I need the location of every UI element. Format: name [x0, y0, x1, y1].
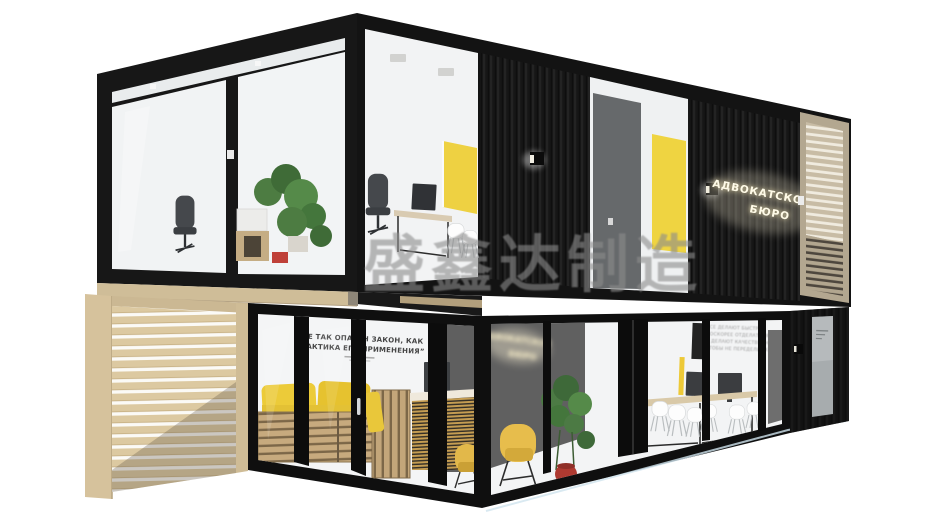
wall-lamp — [523, 151, 545, 169]
cabinet-shelf — [244, 236, 261, 257]
window-clip — [150, 84, 156, 89]
door-handle — [608, 218, 613, 225]
lower-floor: “НЕ ТАК ОПАСЕН ЗАКОН, КАК ПРАКТИКА ЕГО П… — [85, 294, 849, 511]
mullion — [702, 319, 710, 441]
window-clip — [255, 61, 261, 66]
mullion — [543, 321, 551, 474]
sliding-door-frame — [618, 319, 648, 457]
upper-left-facade — [97, 13, 357, 292]
window-handle — [227, 150, 234, 159]
watermark-text: 盛鑫达制造 — [363, 228, 703, 301]
sliding-door-stile — [351, 319, 366, 476]
screen-post-right — [236, 303, 248, 473]
ceiling-light — [438, 68, 454, 76]
wood-slat-screen — [85, 294, 248, 499]
render-scene: АДВОКАТСКОЕ БЮРО АДВОКАТСКОЕ БЮРО — [0, 0, 930, 523]
yellow-door — [443, 141, 477, 214]
wall-board — [691, 323, 703, 359]
mullion — [294, 316, 309, 466]
door-handle — [357, 398, 361, 415]
interior-side-wall — [768, 330, 782, 424]
corner-post — [428, 323, 447, 486]
louver-panel — [798, 112, 849, 303]
monitor — [411, 183, 436, 210]
ceiling-light — [390, 54, 406, 62]
louver-handle — [798, 196, 804, 205]
red-box — [272, 252, 288, 263]
lower-glass-a: “НЕ ТАК ОПАСЕН ЗАКОН, КАК ПРАКТИКА ЕГО П… — [248, 303, 482, 508]
render-canvas: АДВОКАТСКОЕ БЮРО АДВОКАТСКОЕ БЮРО — [0, 0, 930, 523]
white-cabinet — [237, 209, 267, 231]
screen-post-left — [85, 294, 112, 499]
end-cap — [790, 307, 849, 433]
mullion — [758, 318, 766, 431]
